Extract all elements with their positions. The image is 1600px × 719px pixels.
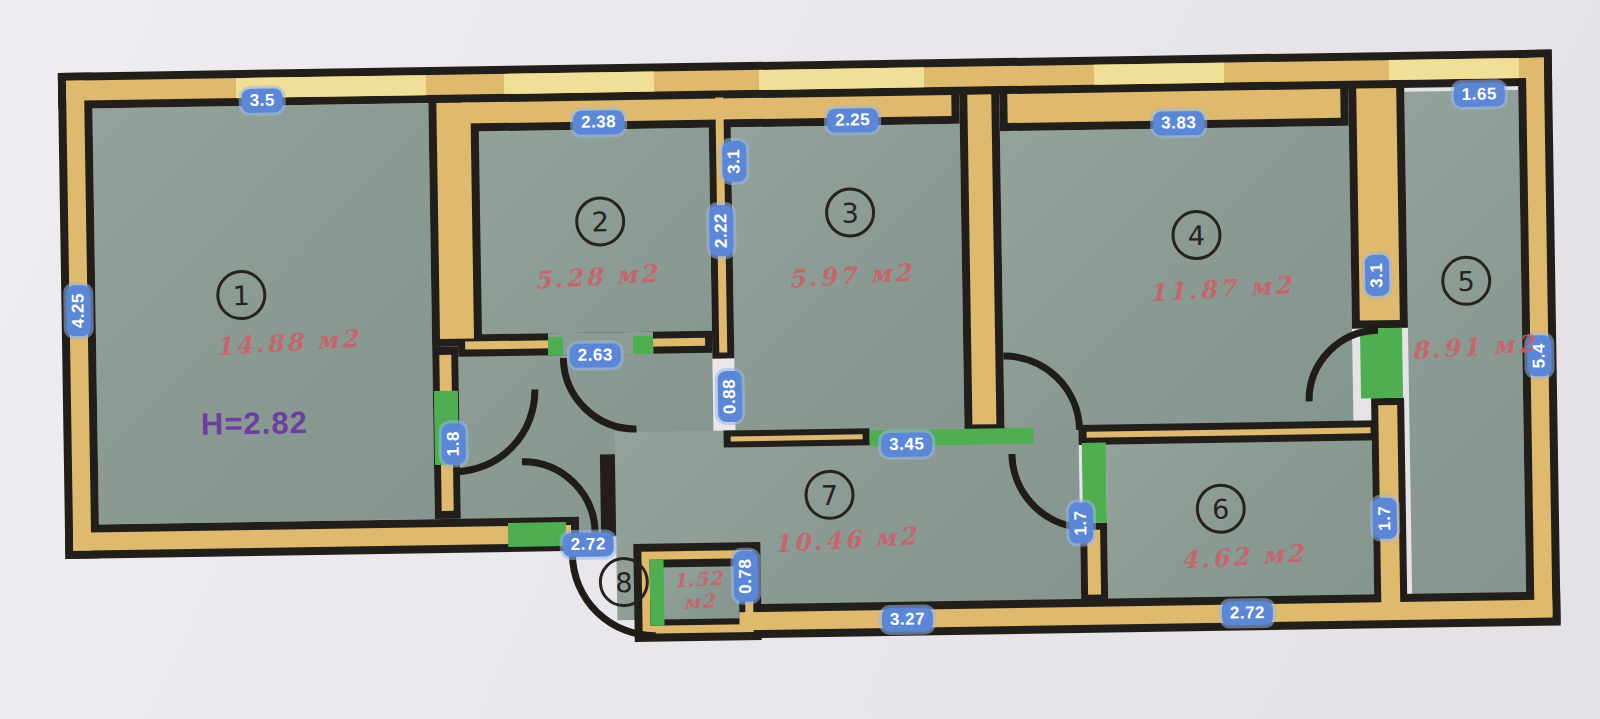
- room-8-area-unit: м2: [674, 589, 725, 614]
- dim-room1-top: 3.5: [242, 88, 284, 113]
- door-marker: [633, 336, 653, 354]
- window: [1389, 58, 1519, 80]
- floor-plan-photo: 3.5 4.25 2.38 3.1 2.22 2.25 3.83 1.65 3.…: [0, 0, 1600, 719]
- room-number-label: 4: [1188, 219, 1206, 250]
- dim-room3-top: 2.25: [827, 108, 878, 133]
- dim-wall23-upper: 3.1: [722, 141, 747, 183]
- room-number-label: 2: [591, 206, 609, 237]
- dim-room6-bottom: 2.72: [1222, 601, 1273, 626]
- dim-wall23-lower: 2.22: [709, 205, 734, 256]
- wall-fill: [436, 102, 474, 339]
- door-marker: [1360, 328, 1403, 399]
- window: [759, 67, 924, 90]
- dim-hall-right: 0.88: [718, 371, 743, 422]
- dim-room5-left: 3.1: [1365, 254, 1390, 296]
- door-marker: [650, 559, 665, 625]
- dim-room7-opening: 3.45: [881, 432, 932, 457]
- dim-room2-top: 2.38: [573, 110, 624, 135]
- room-number-label: 5: [1457, 265, 1475, 296]
- dim-hall-bottom: 2.72: [563, 532, 614, 557]
- wall: [600, 454, 616, 536]
- dim-room5-top: 1.65: [1454, 82, 1505, 107]
- door-marker: [508, 522, 566, 547]
- room-8-area-value: 1.52: [673, 568, 724, 593]
- window: [1094, 63, 1224, 85]
- room-number-label: 7: [821, 479, 839, 510]
- dim-room6-right: 1.7: [1373, 497, 1398, 539]
- ceiling-height-label: H=2.82: [201, 405, 308, 443]
- room-number-label: 1: [232, 279, 250, 310]
- dim-room7-bottom: 3.27: [882, 607, 933, 632]
- room-8-area: 1.52 м2: [673, 568, 726, 615]
- dim-room8-right: 0.78: [733, 550, 758, 601]
- window: [504, 72, 654, 94]
- room-1-floor: [92, 103, 434, 524]
- room-number-label: 3: [841, 197, 859, 228]
- floor-plan: 3.5 4.25 2.38 3.1 2.22 2.25 3.83 1.65 3.…: [0, 0, 1600, 719]
- room-number-label: 6: [1212, 493, 1230, 524]
- door-marker: [548, 337, 563, 355]
- dim-room4-top: 3.83: [1153, 111, 1204, 136]
- room-number-label: 8: [615, 566, 633, 597]
- dim-hall-door: 2.63: [570, 343, 621, 368]
- dim-room1-left: 4.25: [66, 285, 91, 336]
- dim-room6-left: 1.7: [1069, 502, 1094, 544]
- dim-room1-door: 1.8: [441, 423, 466, 465]
